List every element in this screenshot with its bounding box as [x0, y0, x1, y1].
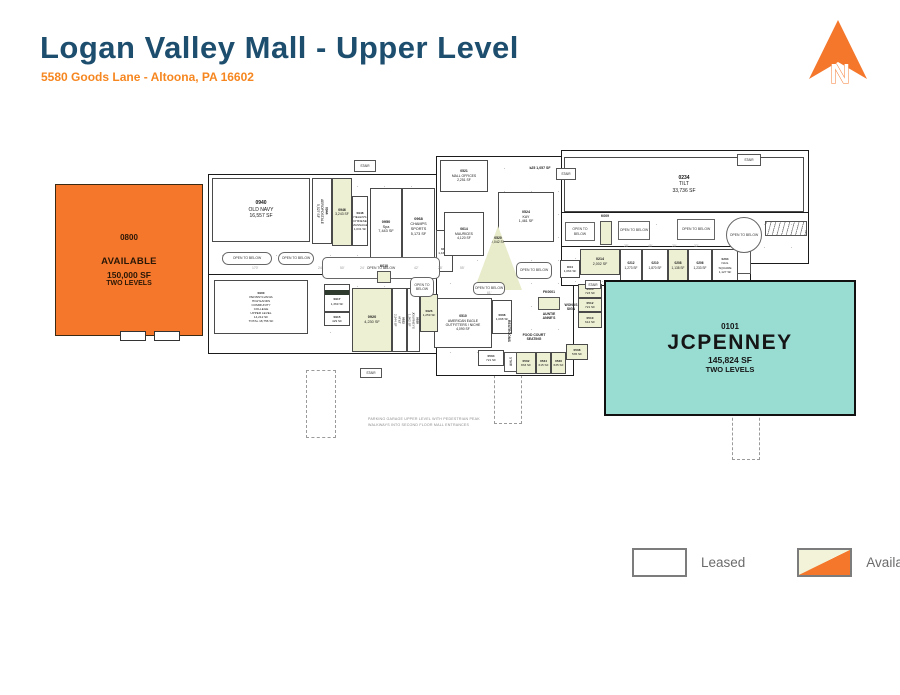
store-0524-8: 0524KAY1,461 SF	[498, 192, 554, 242]
store-0948-3: 0948HELEN'SCHINESEMASSAGE1,031 SF	[352, 196, 368, 246]
store-0504-24: 0504721 SF	[478, 350, 504, 366]
space-levels: TWO LEVELS	[106, 280, 152, 287]
store-0206-17: 02061,233 SF	[688, 249, 712, 282]
stair: STAIR	[354, 160, 376, 172]
store-0920-32: 09204,230 SF	[352, 288, 392, 352]
store-0944-1: 0944AEROPOSTALE5,527 SF	[312, 178, 332, 244]
open-to-below-area: OPEN TO BELOW	[726, 217, 762, 253]
store-0502-25: 0502833 SF	[516, 352, 536, 374]
north-letter: N	[830, 58, 850, 88]
entrance-notch	[120, 331, 146, 341]
open-to-below-area: OPEN TO BELOW	[516, 262, 552, 279]
store-0234-11: 0234TILT33,736 SF	[564, 157, 804, 212]
space-status: AVAILABLE	[101, 256, 157, 267]
plan-label: WALKWAYS INTO SECOND FLOOR MALL ENTRANCE…	[368, 423, 498, 427]
jcpenney-sf: 145,824 SF	[708, 355, 752, 365]
legend: Leased Available	[632, 548, 900, 577]
plan-label: FK0001	[532, 290, 566, 294]
anchor-space-0800: 0800 AVAILABLE 150,000 SF TWO LEVELS	[55, 184, 203, 336]
page-title: Logan Valley Mall - Upper Level	[40, 30, 519, 66]
escalator-icon	[765, 221, 807, 236]
store-0510-21: 0510612 SF	[578, 312, 602, 328]
jcpenney-levels: TWO LEVELS	[706, 365, 755, 374]
plan-label: FOOD COURTSEATING	[512, 333, 556, 342]
space-id: 0800	[120, 233, 138, 242]
plan-label: K009	[594, 214, 616, 218]
kiosk-FK0001	[538, 297, 560, 310]
north-arrow-icon: N	[803, 16, 873, 88]
dim-label: 28'	[438, 266, 442, 270]
store-0508-28: 0508535 SF	[566, 344, 588, 360]
store-0968-5: 0968CHAMPSSPORTS5,173 SF	[402, 188, 435, 266]
kiosk-K009	[600, 221, 612, 245]
stair: STAIR	[504, 352, 517, 372]
open-to-below-area: OPEN TO BELOW	[278, 252, 314, 265]
store-0212-14: 02121,273 SF	[620, 249, 642, 282]
store-0926-35: 09261,259 SF	[420, 294, 438, 332]
dim-label: 32'	[694, 244, 698, 248]
dim-label: 24'	[360, 266, 364, 270]
store-0208-16: 02081,138 SF	[668, 249, 688, 282]
open-to-below-area: OPEN TO BELOW	[410, 277, 434, 297]
store-0928-34: 0928JOURNEYS1,362 SF	[407, 288, 420, 352]
store-0917-30: 09171,369 SF	[324, 284, 350, 312]
jcpenney-name: JCPENNEY	[667, 331, 792, 355]
store-0946-2: 09463,243 SF	[332, 178, 352, 246]
entrance-arrow	[306, 370, 336, 438]
store-0204-18: 0204NAILSQUARE1,127 SF	[712, 249, 738, 282]
stair: STAIR	[360, 368, 382, 378]
dim-label: 42'	[414, 266, 418, 270]
page-subtitle: 5580 Goods Lane - Altoona, PA 16602	[41, 70, 254, 84]
open-to-below-area: OPEN TO BELOW	[677, 219, 715, 240]
dim-label: 20'	[672, 244, 676, 248]
dim-label: 55'	[460, 266, 464, 270]
store-0521-7: 0521MALL OFFICES2,251 SF	[440, 160, 488, 192]
entrance-notch	[154, 331, 180, 341]
dim-label: 45'	[648, 244, 652, 248]
stair: STAIR	[737, 154, 761, 166]
legend-available-swatch	[797, 548, 852, 577]
store-0922-33: 0922AT&T2,544 SF	[392, 288, 407, 352]
dim-label: 61'	[487, 291, 491, 295]
dim-label: 170'	[252, 266, 258, 270]
store-0510-22: 0510AMERICAN EAGLEOUTFITTERS / NICHE4,09…	[434, 298, 492, 348]
dim-label: 50'	[340, 266, 344, 270]
space-sf: 150,000 SF	[107, 270, 151, 280]
open-to-below-area: OPEN TO BELOW	[565, 222, 595, 241]
store-0915-31: 0915429 SF	[324, 312, 350, 326]
store-0940-0: 0940OLD NAVY16,557 SF	[212, 178, 310, 242]
legend-available-label: Available	[866, 555, 900, 570]
jcpenney-id: 0101	[721, 322, 739, 331]
open-to-below-area: OPEN TO BELOW	[618, 221, 650, 240]
dim-label: 28'	[624, 244, 628, 248]
store-0210-15: 02101,870 SF	[642, 249, 668, 282]
plan-label: K010	[377, 264, 391, 268]
kiosk-K010	[377, 271, 391, 283]
plan-label: PARKING GARAGE UPPER LEVEL WITH PEDESTRI…	[368, 417, 498, 421]
open-to-below-area: OPEN TO BELOW	[222, 252, 272, 265]
store-0536-27: 0536635 SF	[551, 352, 566, 374]
store-0900-29: 0900PENNSYLVANIAHIGHLANDSCOMMUNITYCOLLEG…	[214, 280, 308, 334]
stair: STAIR	[585, 280, 601, 289]
rotunda-stem	[736, 251, 751, 274]
mall-map-page: Logan Valley Mall - Upper Level 5580 Goo…	[0, 0, 900, 695]
dim-label: 24'	[318, 266, 322, 270]
plan-label: k25 1,057 SF	[519, 166, 561, 170]
plan-label: WONDSSIGN	[560, 303, 582, 312]
legend-leased-swatch	[632, 548, 687, 577]
legend-leased-label: Leased	[701, 555, 745, 570]
plan-label: RESTROOMS	[503, 320, 511, 342]
store-0214-13: 02142,002 SF	[580, 249, 620, 275]
plan-label: AUNTIEANNE'S	[532, 312, 566, 321]
entrance-arrow	[494, 370, 522, 424]
store-K04-12: K041,064 SF	[560, 260, 580, 278]
store-0534-26: 0534615 SF	[536, 352, 551, 374]
store-0950-4: 0950Spa7,443 SF	[370, 188, 402, 266]
store-0614-9: 0614MAURICES4,120 SF	[444, 212, 484, 256]
anchor-jcpenney: 0101 JCPENNEY 145,824 SF TWO LEVELS	[604, 280, 856, 416]
